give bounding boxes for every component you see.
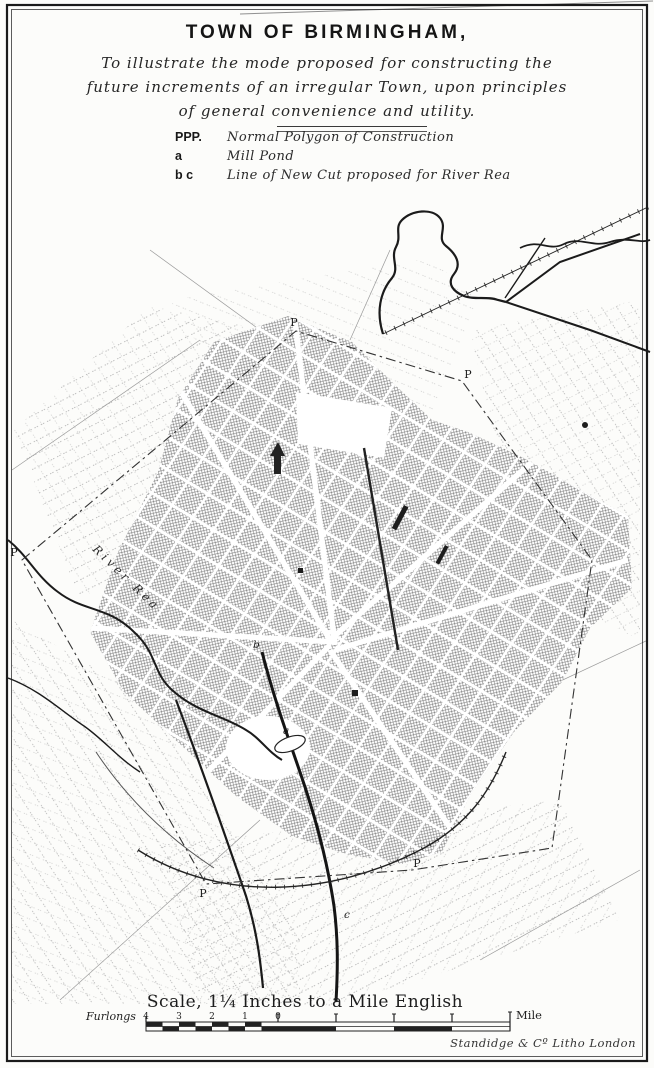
scale-bar: 4 3 2 1 0 — [143, 1012, 512, 1031]
cut-label-c: c — [344, 909, 350, 921]
cut-label-b: b — [253, 639, 260, 651]
furlong-tick-label: 1 — [242, 1012, 248, 1022]
polygon-label-p-top: P — [290, 316, 298, 329]
polygon-label-p-bright: P — [413, 857, 421, 870]
polygon-label-p-right: P — [464, 368, 472, 381]
furlong-tick-label: 3 — [176, 1012, 182, 1022]
map-svg: P P P P P a b c River Rea 4 3 2 1 0 — [0, 0, 654, 1068]
scan-artifact-line — [240, 1, 653, 14]
furlong-tick-label: 2 — [209, 1012, 215, 1022]
polygon-label-p-bleft: P — [199, 887, 207, 900]
map-sheet: P P P P P a b c River Rea 4 3 2 1 0 — [0, 0, 654, 1068]
mill-pond-label: a — [283, 725, 289, 737]
